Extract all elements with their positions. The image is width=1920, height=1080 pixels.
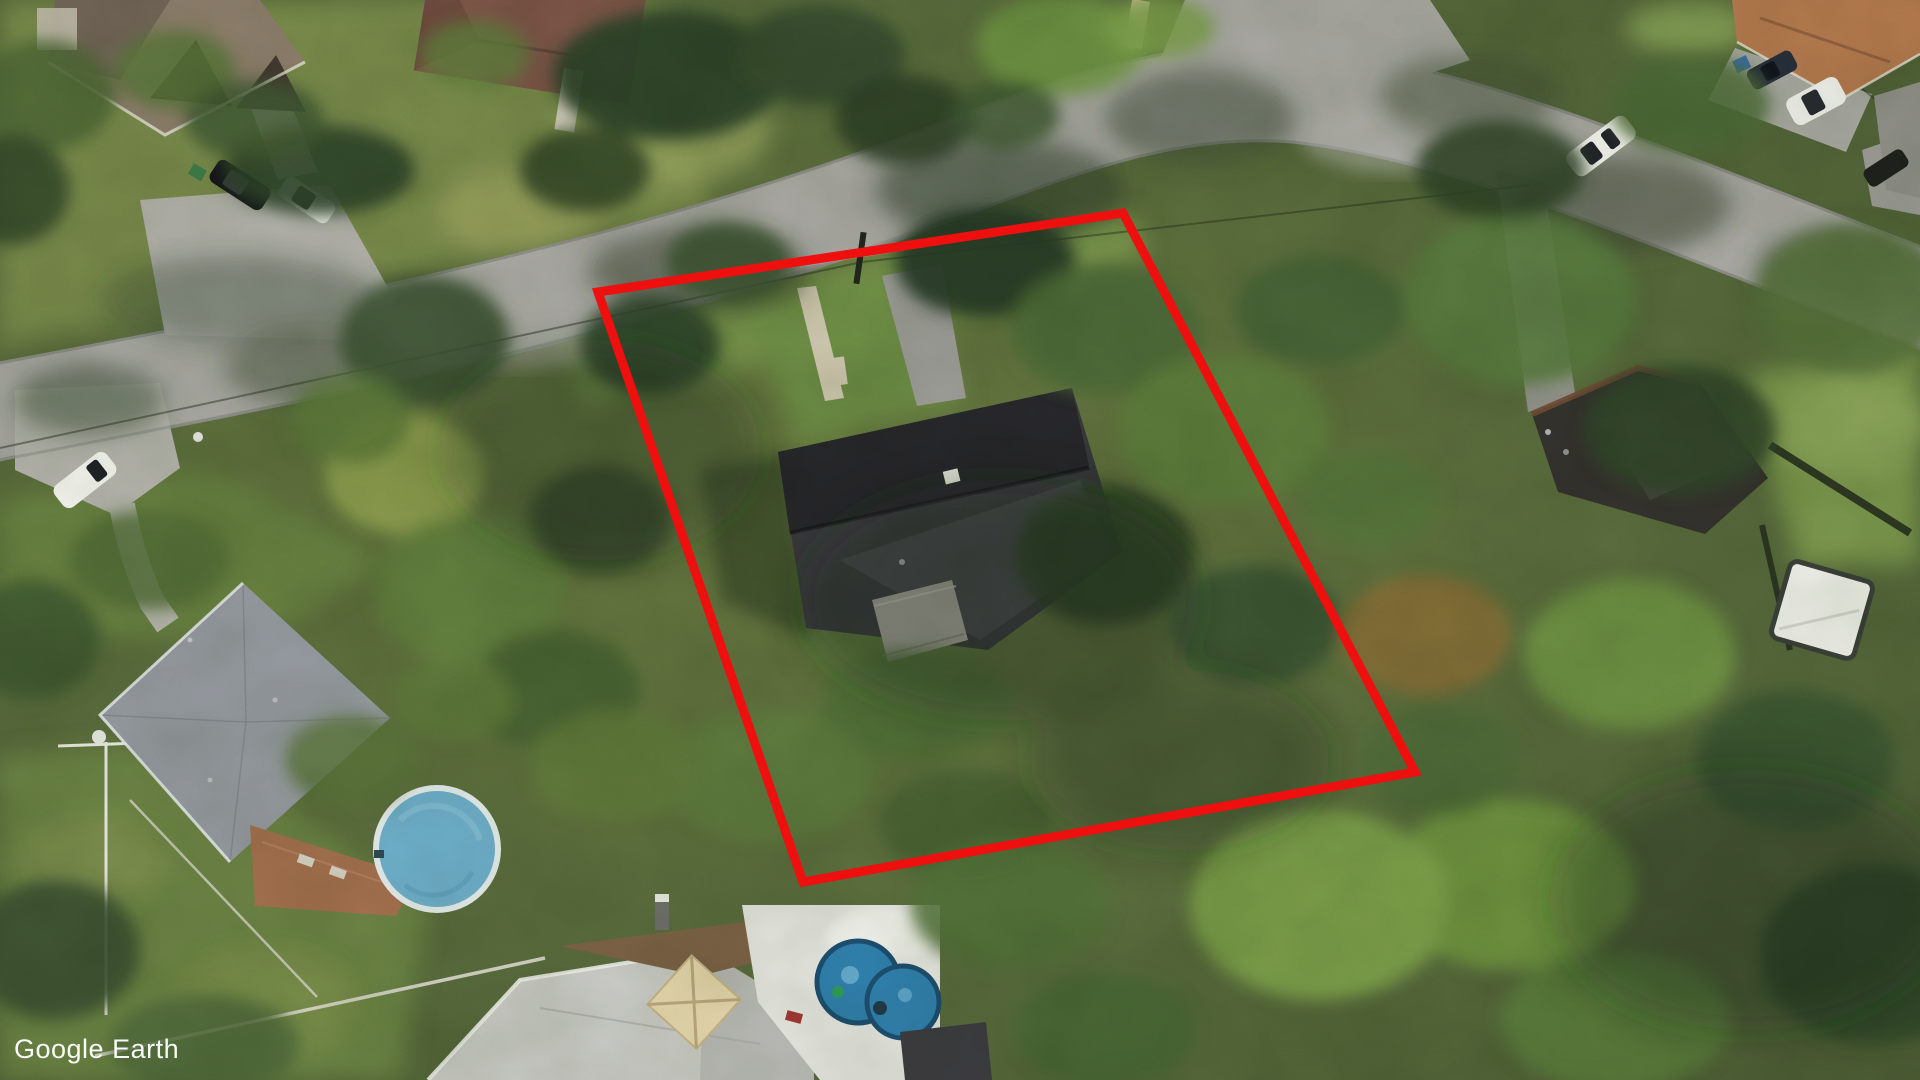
google-earth-watermark: Google Earth bbox=[14, 1034, 179, 1064]
satellite-canvas: Google Earth bbox=[0, 0, 1920, 1080]
google-earth-viewport: Google Earth bbox=[0, 0, 1920, 1080]
photo-grain-overlay bbox=[0, 0, 1920, 1080]
